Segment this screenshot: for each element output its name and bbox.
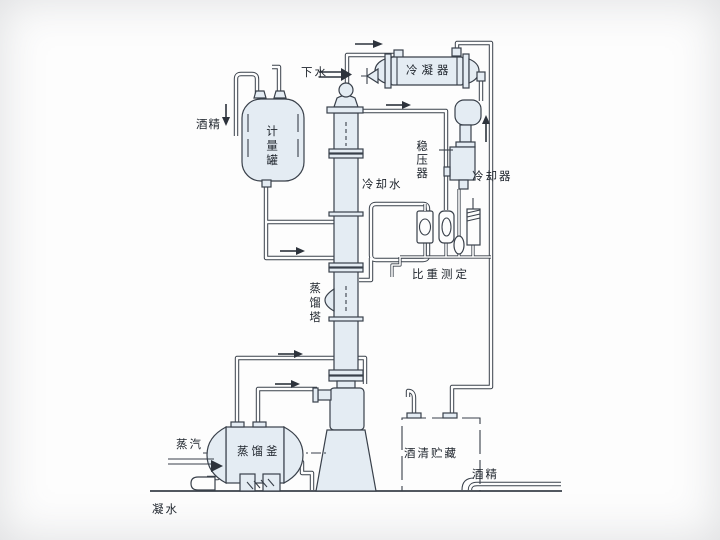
sight-glass xyxy=(325,289,334,311)
label-distillation-tower: 蒸馏塔 xyxy=(309,282,321,326)
column-bottom-vessel xyxy=(330,388,364,430)
label-condensate: 凝水 xyxy=(152,503,179,515)
flow-arrow-down-icon xyxy=(222,104,230,126)
process-diagram xyxy=(0,0,720,540)
valve-icon xyxy=(361,68,378,84)
label-condenser: 冷凝器 xyxy=(406,64,453,76)
column-skirt xyxy=(316,430,376,491)
flow-arrow-right-icon xyxy=(355,40,383,48)
flow-arrow-right-icon xyxy=(386,101,411,109)
flow-arrow-right-icon xyxy=(280,247,305,255)
float-bulb xyxy=(454,236,464,254)
rotameter-device xyxy=(439,211,454,243)
label-distillation-kettle: 蒸馏釜 xyxy=(237,445,281,457)
label-drain-water: 下水 xyxy=(301,66,328,78)
label-alcohol-storage: 酒清贮藏 xyxy=(404,447,458,459)
label-metering-tank: 计量罐 xyxy=(266,125,278,169)
label-cooler: 冷却器 xyxy=(472,170,513,182)
label-pressure-stabilizer: 稳压器 xyxy=(416,140,428,181)
label-steam: 蒸汽 xyxy=(176,438,203,450)
diagram-canvas: 下水 冷凝器 酒精 计量罐 稳压器 冷却水 冷却器 比重测定 蒸馏塔 蒸馏釜 蒸… xyxy=(0,0,720,540)
separator-pot xyxy=(455,100,481,125)
label-alcohol-feed: 酒精 xyxy=(196,118,221,130)
column-top-ball xyxy=(339,83,353,97)
distillation-column xyxy=(313,83,376,491)
drain-shoe xyxy=(191,477,215,490)
label-cooling-water: 冷却水 xyxy=(362,178,403,190)
label-gravity-measurement: 比重测定 xyxy=(412,268,470,280)
label-alcohol-out: 酒精 xyxy=(472,468,499,480)
